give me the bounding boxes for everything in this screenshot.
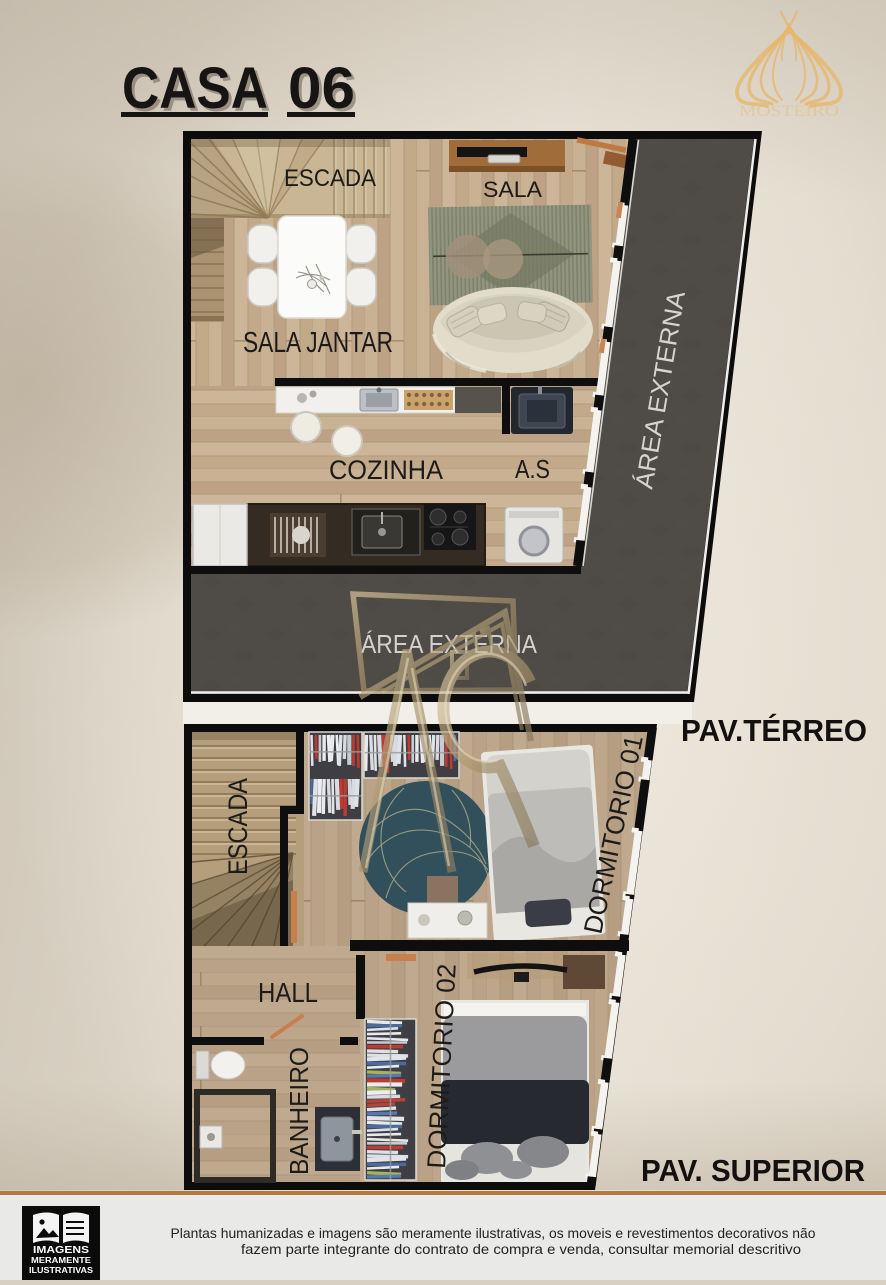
svg-text:PAV.TÉRREO: PAV.TÉRREO	[681, 713, 867, 748]
svg-text:SALA: SALA	[483, 177, 542, 202]
svg-text:SALA JANTAR: SALA JANTAR	[243, 327, 393, 359]
svg-text:HALL: HALL	[258, 977, 318, 1008]
svg-text:A.S: A.S	[515, 454, 550, 484]
svg-text:ILUSTRATIVAS: ILUSTRATIVAS	[29, 1266, 94, 1275]
svg-text:Plantas humanizadas e imagens: Plantas humanizadas e imagens são merame…	[171, 1225, 816, 1241]
svg-text:MOSTEIRO: MOSTEIRO	[739, 103, 839, 120]
svg-text:IMAGENS: IMAGENS	[33, 1245, 89, 1256]
svg-text:MERAMENTE: MERAMENTE	[31, 1256, 92, 1265]
svg-text:BANHEIRO: BANHEIRO	[284, 1047, 314, 1175]
svg-text:CASA: CASA	[122, 56, 268, 121]
svg-text:COZINHA: COZINHA	[329, 455, 443, 485]
svg-text:fazem parte integrante do cont: fazem parte integrante do contrato de co…	[241, 1241, 801, 1257]
svg-text:PAV. SUPERIOR: PAV. SUPERIOR	[641, 1153, 865, 1188]
svg-text:06: 06	[288, 56, 355, 121]
svg-text:ESCADA: ESCADA	[284, 165, 376, 192]
svg-text:ESCADA: ESCADA	[223, 778, 253, 875]
